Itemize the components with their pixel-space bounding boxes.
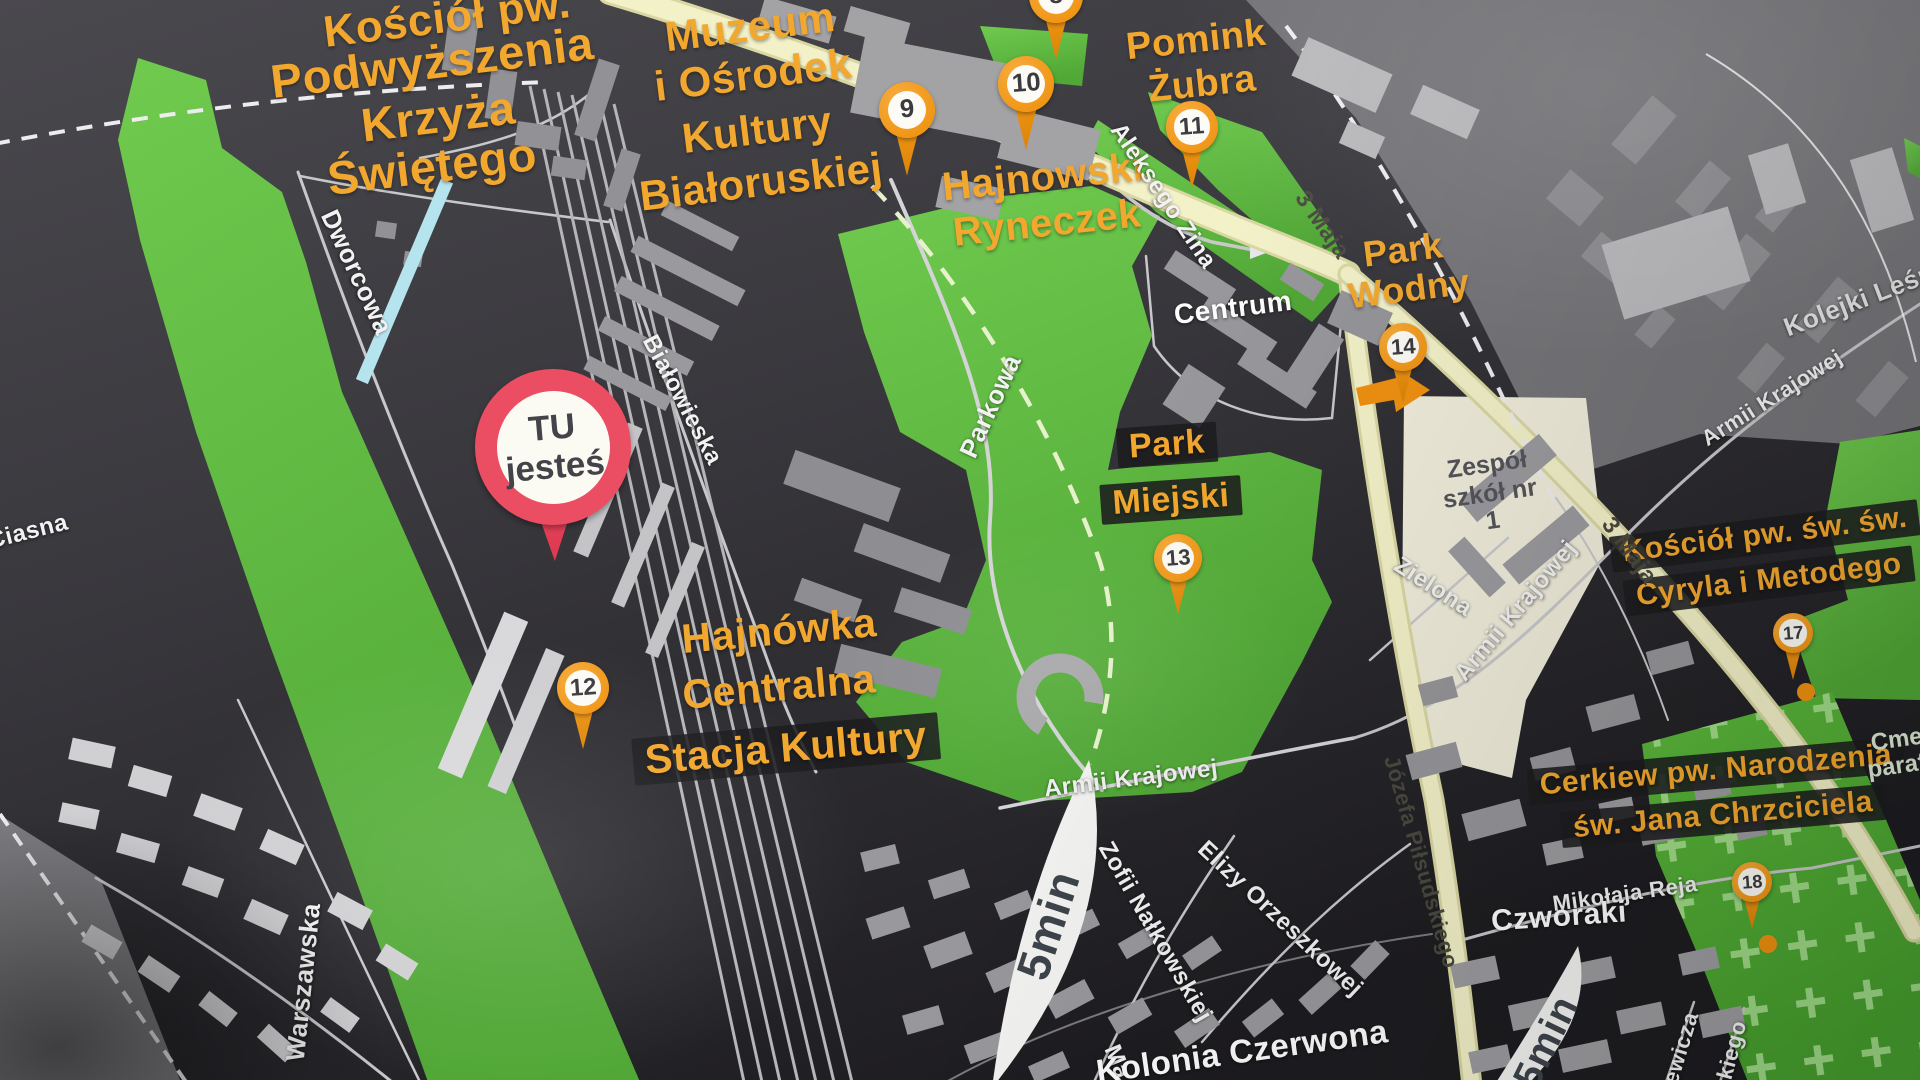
walk-time-badge: 5min xyxy=(1009,865,1087,985)
place-label-school: 1 xyxy=(1484,508,1501,535)
poi-label-church-holy-cross: Świętego xyxy=(325,130,539,202)
street-label-elizy-orzeszkowej: Elizy Orzeszkowej xyxy=(1193,837,1367,1001)
street-label-parkowa: Parkowa xyxy=(955,350,1025,461)
pin-number: 11 xyxy=(1178,112,1205,142)
place-label-kolonia-czerwona: Kolonia Czerwona xyxy=(1094,1014,1390,1080)
map-pin-13: 13 xyxy=(1154,534,1202,582)
street-label-zofii-nalkowskiej: Zofii Nałkowskiej xyxy=(1094,838,1216,1026)
street-label-bialowieska: Białowieska xyxy=(638,331,726,468)
street-label-3-maja: 3 Maja xyxy=(1290,187,1353,263)
pin-number: 8 xyxy=(1048,0,1064,10)
map-pin-10: 10 xyxy=(998,56,1054,112)
pin-number: 9 xyxy=(899,95,915,125)
map-pin-11: 11 xyxy=(1166,101,1218,153)
you-are-here-label: TUjesteś xyxy=(492,386,614,508)
street-label-fragment: kiego xyxy=(1714,1018,1751,1080)
map-pin-9: 9 xyxy=(879,82,935,138)
place-label-centrum: Centrum xyxy=(1172,287,1293,329)
walk-time-badge: 5min xyxy=(1507,989,1586,1080)
map-pin-18: 18 xyxy=(1732,862,1772,902)
pin-number: 14 xyxy=(1390,333,1416,361)
map-pin-8: 8 xyxy=(1029,0,1083,23)
poi-label-stacja-kultury: Hajnówka xyxy=(680,602,878,660)
street-label-ciasna: Ciasna xyxy=(0,510,71,553)
street-label-warszawska: Warszawska xyxy=(282,902,324,1063)
street-label-zielona: Zielona xyxy=(1390,553,1476,621)
street-label-armii-krajowej: Armii Krajowej xyxy=(1698,346,1846,450)
you-are-here-pin: TUjesteś xyxy=(475,369,631,525)
map-pin-12: 12 xyxy=(557,662,609,714)
street-label-armii-krajowej: Armii Krajowej xyxy=(1043,756,1220,801)
poi-label-museum: Białoruskiej xyxy=(637,146,884,217)
poi-label-stacja-kultury: Stacja Kultury xyxy=(631,712,941,786)
street-label-dworcowa: Dworcowa xyxy=(317,206,397,338)
map-pin-17: 17 xyxy=(1773,613,1813,653)
pin-number: 13 xyxy=(1165,544,1191,572)
street-label-fragment: ewicza xyxy=(1660,1009,1703,1080)
map-photo: Kościół pw. Podwyższenia Krzyża Świętego… xyxy=(0,0,1920,1080)
map-pin-14: 14 xyxy=(1379,323,1427,371)
place-label-cemetery: parafi xyxy=(1866,750,1920,783)
poi-label-park-miejski: Miejski xyxy=(1099,475,1242,525)
pin-number: 10 xyxy=(1011,69,1042,100)
street-label-armii-krajowej: Armii Krajowej xyxy=(1451,536,1582,686)
place-label-czworaki: Czworaki xyxy=(1490,897,1627,936)
street-label-kolejki-lesne: Kolejki Leśne xyxy=(1780,254,1920,341)
poi-label-stacja-kultury: Centralna xyxy=(681,658,877,716)
poi-label-park-miejski: Park xyxy=(1116,422,1218,469)
pin-number: 17 xyxy=(1782,621,1804,644)
street-label-pilsudskiego: Józefa Piłsudskiego xyxy=(1380,753,1462,970)
pin-number: 12 xyxy=(569,673,597,703)
pin-number: 18 xyxy=(1741,870,1763,893)
